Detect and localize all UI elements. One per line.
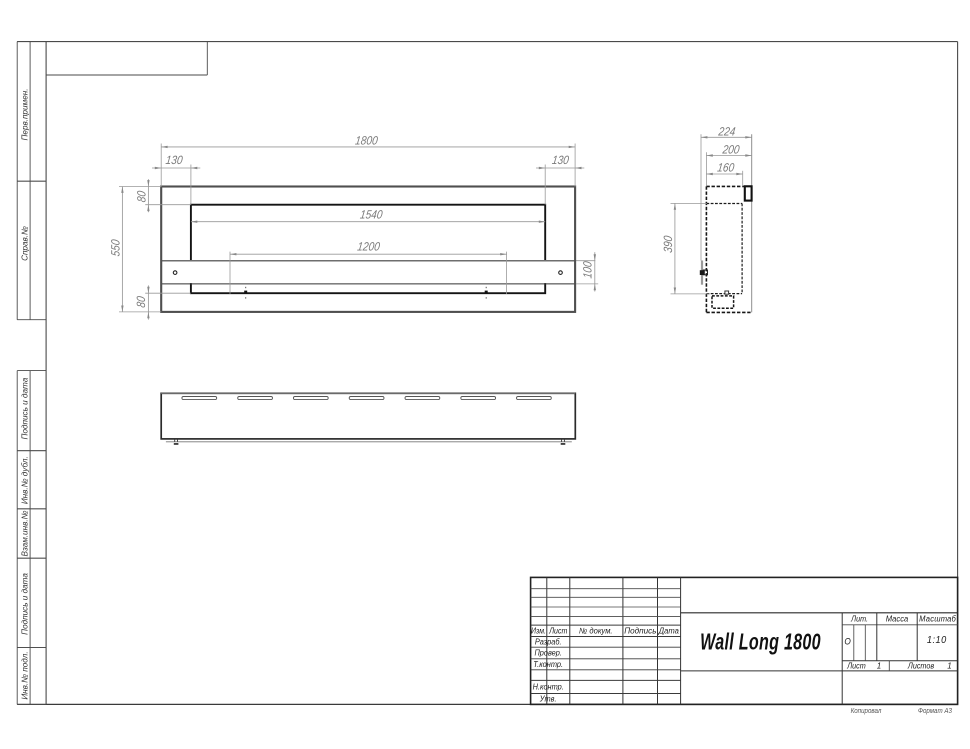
svg-text:130: 130: [551, 154, 570, 167]
svg-text:Справ.№: Справ.№: [19, 226, 29, 261]
svg-text:100: 100: [582, 260, 595, 279]
svg-text:Разраб.: Разраб.: [535, 637, 562, 646]
svg-text:1:10: 1:10: [927, 635, 947, 646]
svg-text:Формат А3: Формат А3: [918, 708, 952, 715]
svg-text:390: 390: [663, 234, 676, 253]
svg-text:Масштаб: Масштаб: [919, 614, 956, 623]
svg-text:1200: 1200: [356, 241, 381, 254]
svg-text:550: 550: [110, 238, 123, 257]
svg-text:1540: 1540: [359, 209, 384, 222]
svg-text:Масса: Масса: [886, 614, 909, 623]
svg-text:1: 1: [877, 661, 881, 670]
svg-text:Подпись и дата: Подпись и дата: [19, 377, 29, 439]
svg-text:О: О: [844, 636, 851, 646]
svg-text:№ докум.: № докум.: [579, 626, 613, 635]
svg-text:1: 1: [947, 661, 951, 670]
svg-text:Копировал: Копировал: [851, 708, 882, 715]
svg-text:Провер.: Провер.: [534, 648, 561, 657]
svg-text:Подпись и дата: Подпись и дата: [19, 573, 29, 635]
svg-text:Wall Long 1800: Wall Long 1800: [700, 630, 821, 655]
svg-text:160: 160: [717, 162, 736, 175]
svg-text:Листов: Листов: [907, 661, 934, 670]
svg-text:Лист: Лист: [548, 626, 567, 636]
svg-text:Т.контр.: Т.контр.: [533, 660, 563, 669]
svg-text:1800: 1800: [354, 135, 379, 148]
svg-text:Дата: Дата: [658, 626, 680, 635]
svg-text:Инв.№ подл.: Инв.№ подл.: [19, 651, 29, 699]
svg-text:200: 200: [721, 144, 741, 157]
svg-text:Подпись: Подпись: [624, 626, 656, 635]
svg-text:224: 224: [717, 126, 736, 139]
svg-text:Инв.№ дубл.: Инв.№ дубл.: [19, 456, 29, 504]
svg-text:Лист: Лист: [846, 661, 865, 670]
svg-text:Н.контр.: Н.контр.: [533, 682, 564, 691]
svg-text:Утв.: Утв.: [539, 694, 557, 703]
svg-text:Взам.инв.№: Взам.инв.№: [19, 511, 29, 557]
svg-text:Лит.: Лит.: [850, 614, 868, 623]
svg-text:130: 130: [165, 154, 184, 167]
svg-text:Перв.примен.: Перв.примен.: [19, 89, 29, 141]
svg-text:Изм.: Изм.: [531, 626, 546, 636]
